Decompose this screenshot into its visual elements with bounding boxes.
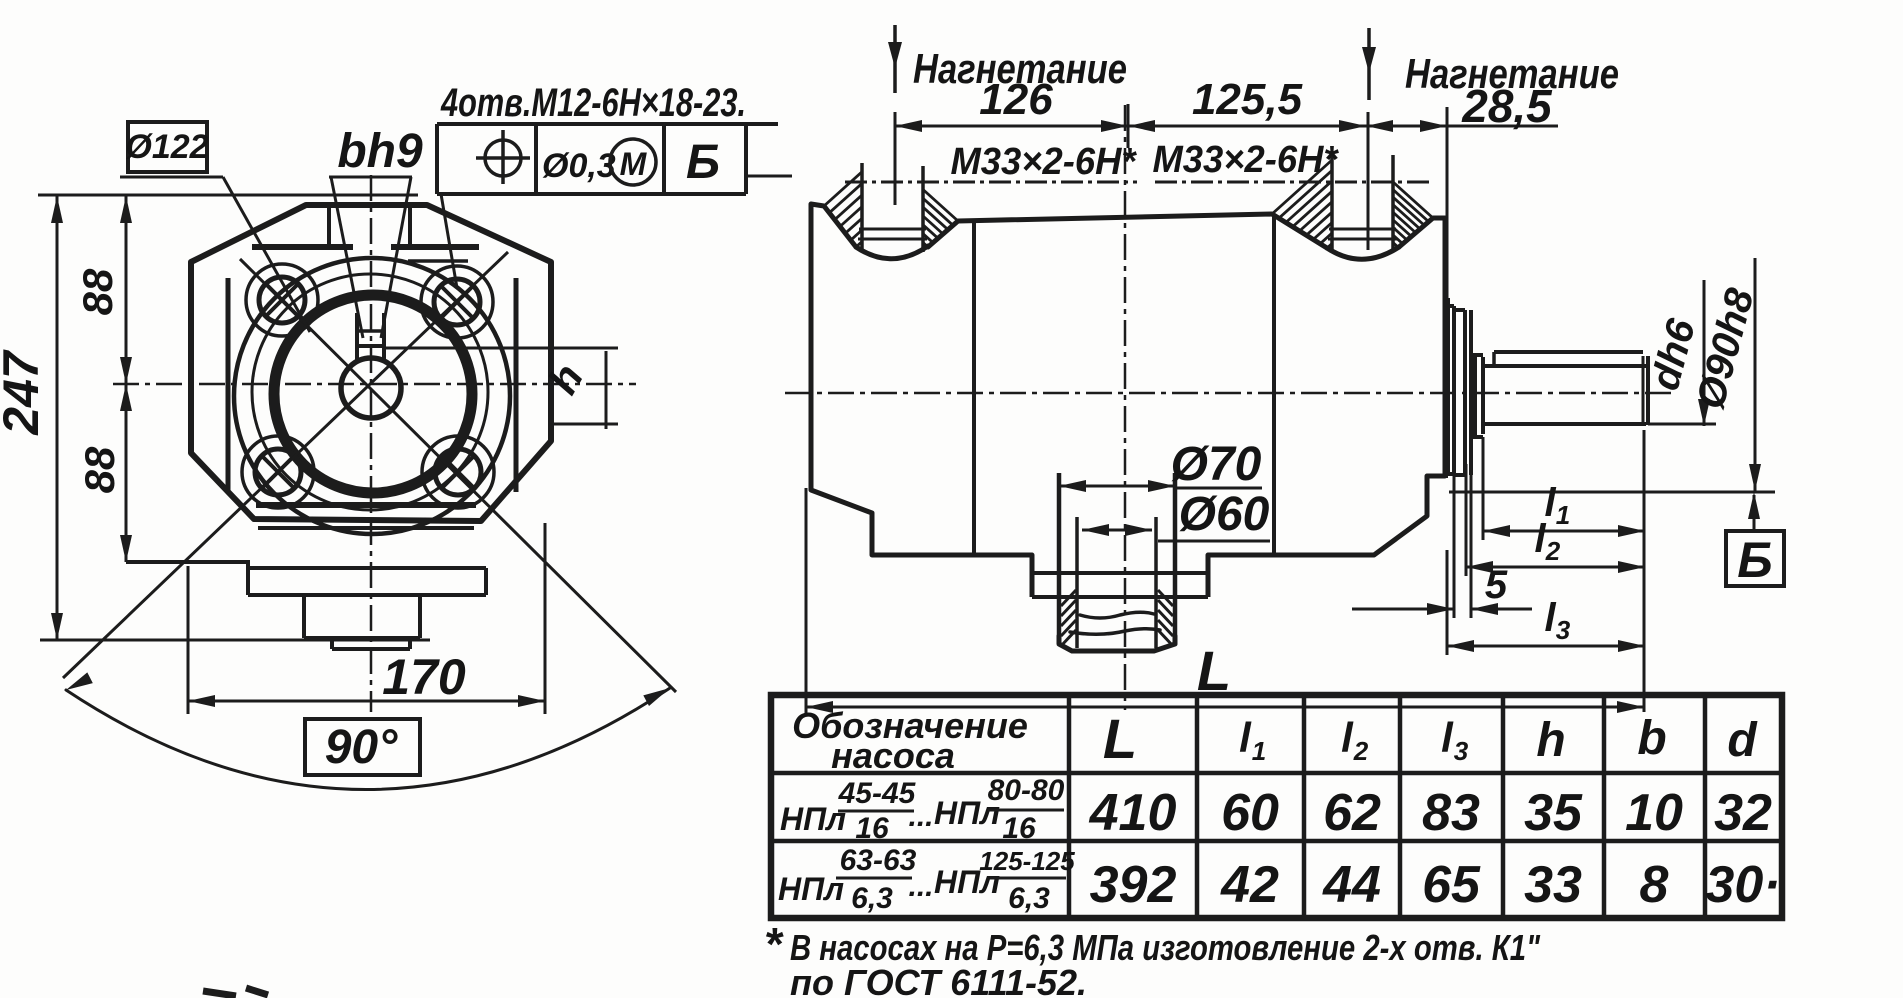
svg-text:d: d — [1727, 714, 1758, 767]
svg-text:3: 3 — [1454, 736, 1469, 766]
svg-text:l: l — [1544, 596, 1556, 640]
svg-text:6,3: 6,3 — [1008, 882, 1050, 915]
svg-text:10: 10 — [1625, 784, 1683, 842]
svg-text:l: l — [1341, 714, 1354, 761]
svg-text:...: ... — [908, 800, 933, 833]
svg-text:410: 410 — [1089, 784, 1177, 842]
svg-text:Ø122: Ø122 — [125, 128, 208, 166]
svg-text:h: h — [1536, 714, 1565, 767]
svg-text:45-45: 45-45 — [838, 777, 917, 810]
svg-text:l: l — [1534, 517, 1546, 561]
svg-text:Ø70: Ø70 — [1171, 438, 1262, 491]
svg-text:80-80: 80-80 — [988, 774, 1065, 807]
svg-text:l: l — [1239, 714, 1252, 761]
svg-text:1: 1 — [1556, 500, 1570, 530]
svg-text:170: 170 — [382, 649, 466, 705]
svg-text:НПл: НПл — [778, 871, 844, 907]
svg-text:2: 2 — [1545, 536, 1561, 566]
svg-text:65: 65 — [1422, 856, 1481, 914]
svg-text:Б: Б — [1737, 532, 1772, 588]
svg-text:М33×2-6Н*: М33×2-6Н* — [951, 141, 1138, 183]
svg-text:насоса: насоса — [831, 735, 955, 776]
svg-text:bh9: bh9 — [337, 125, 423, 178]
svg-text:L: L — [1103, 707, 1137, 770]
svg-text:5: 5 — [1485, 563, 1508, 607]
svg-text:32: 32 — [1714, 784, 1772, 842]
svg-text:30·: 30· — [1705, 856, 1780, 914]
svg-text:8: 8 — [1640, 856, 1669, 914]
svg-text:4отв.М12-6Н×18-23.: 4отв.М12-6Н×18-23. — [440, 81, 746, 125]
svg-text:3: 3 — [1556, 615, 1571, 645]
svg-text:126: 126 — [979, 75, 1053, 124]
svg-text:247: 247 — [0, 349, 49, 436]
svg-text:b: b — [1637, 712, 1666, 765]
svg-text:2: 2 — [1353, 736, 1369, 766]
svg-text:НПл: НПл — [780, 801, 846, 837]
svg-text:28,5: 28,5 — [1461, 80, 1553, 132]
svg-text:*: * — [764, 918, 784, 970]
svg-text:l: l — [1441, 714, 1454, 761]
svg-text:88: 88 — [74, 268, 121, 315]
svg-text:62: 62 — [1323, 784, 1381, 842]
svg-text:по ГОСТ 6111-52.: по ГОСТ 6111-52. — [790, 962, 1087, 998]
svg-text:60: 60 — [1221, 784, 1279, 842]
svg-text:63-63: 63-63 — [840, 844, 917, 877]
svg-text:l: l — [1544, 481, 1556, 525]
svg-text:88: 88 — [76, 446, 123, 493]
svg-text:16: 16 — [1002, 812, 1036, 845]
svg-text:42: 42 — [1220, 856, 1279, 914]
svg-text:44: 44 — [1322, 856, 1381, 914]
svg-text:М33×2-6Н*: М33×2-6Н* — [1153, 139, 1340, 181]
svg-text:М: М — [620, 146, 648, 182]
svg-text:6,3: 6,3 — [851, 882, 893, 915]
svg-text:1: 1 — [1252, 736, 1266, 766]
svg-text:125,5: 125,5 — [1192, 75, 1303, 124]
svg-text:h: h — [539, 356, 593, 402]
svg-text:Ø0,3: Ø0,3 — [542, 147, 616, 185]
svg-text:Ø90h8: Ø90h8 — [1688, 283, 1762, 413]
svg-text:Б: Б — [686, 136, 720, 189]
svg-text:90°: 90° — [325, 721, 398, 774]
svg-text:83: 83 — [1422, 784, 1480, 842]
svg-text:Ø60: Ø60 — [1179, 488, 1270, 541]
svg-text:35: 35 — [1524, 784, 1583, 842]
svg-text:392: 392 — [1090, 856, 1177, 914]
svg-text:16: 16 — [855, 812, 889, 845]
svg-text:125-125: 125-125 — [979, 846, 1075, 876]
svg-text:...: ... — [908, 870, 933, 903]
svg-text:33: 33 — [1524, 856, 1582, 914]
